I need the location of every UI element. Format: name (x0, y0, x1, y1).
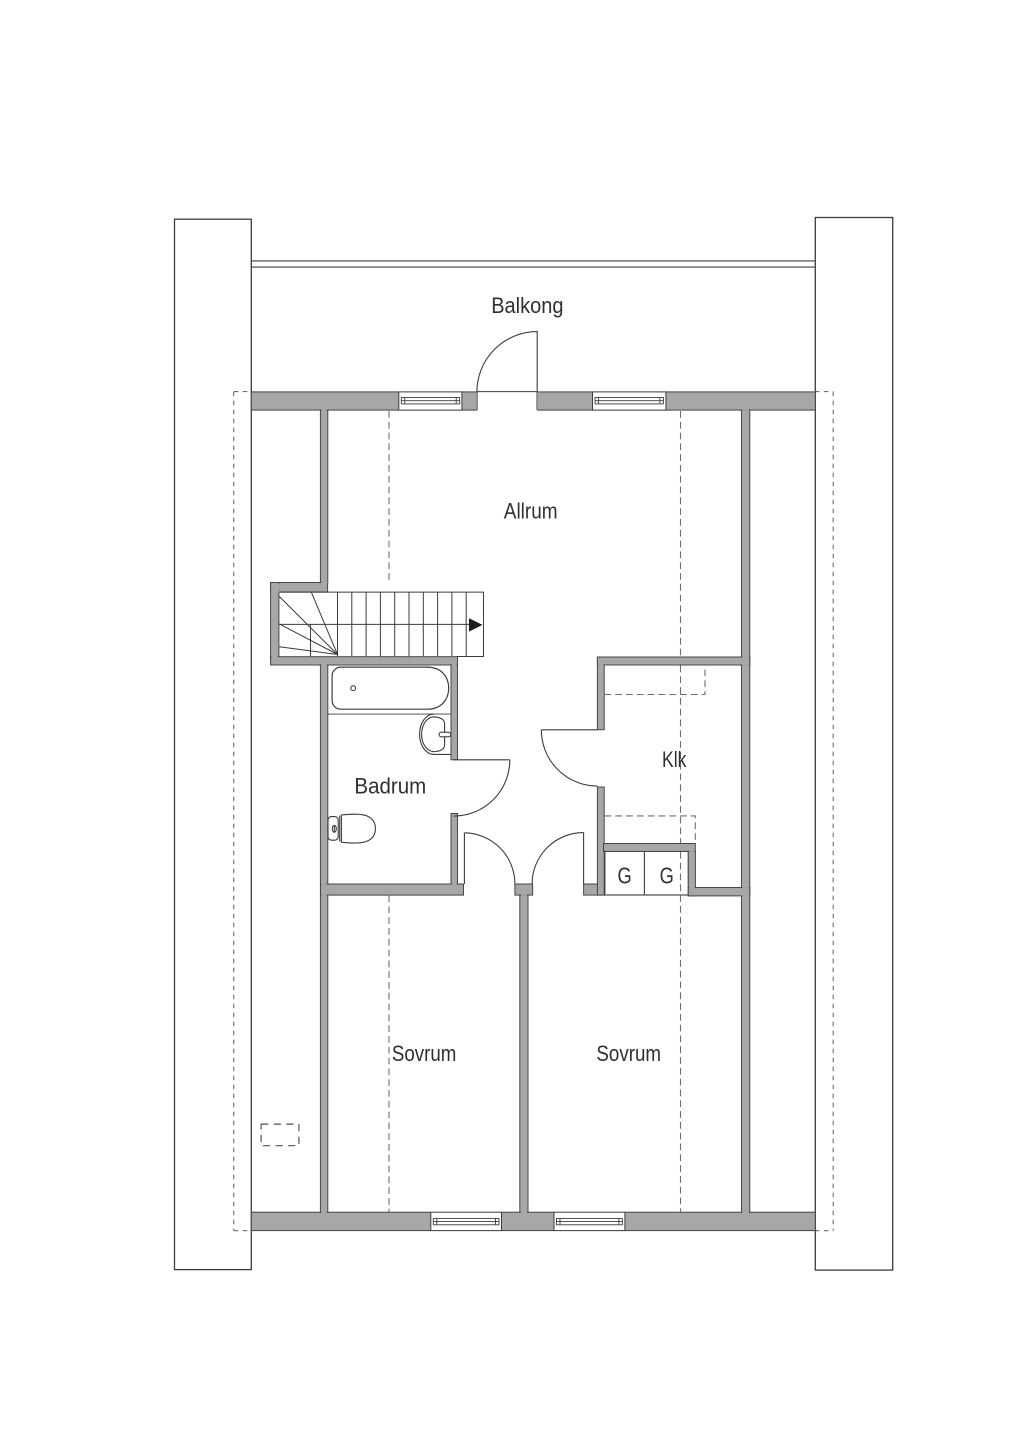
svg-text:Balkong: Balkong (491, 293, 563, 318)
svg-text:Sovrum: Sovrum (596, 1041, 661, 1066)
svg-text:Badrum: Badrum (354, 774, 426, 799)
svg-text:Klk: Klk (662, 747, 687, 772)
svg-text:G: G (618, 863, 632, 889)
svg-text:G: G (660, 863, 674, 889)
svg-text:Sovrum: Sovrum (392, 1041, 457, 1066)
svg-text:Allrum: Allrum (504, 499, 558, 524)
